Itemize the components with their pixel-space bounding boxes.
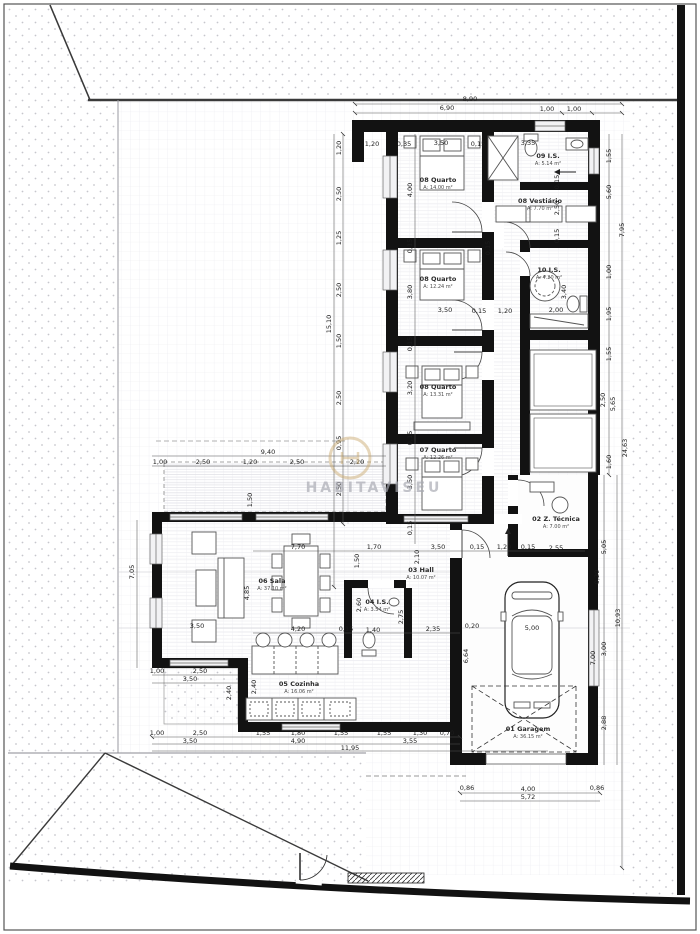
sink-is09 — [566, 138, 588, 150]
dimension-label: 2,35 — [426, 625, 440, 633]
room-label-hall: 03 HallA: 10.07 m² — [406, 566, 435, 581]
dimension-label: 1,40 — [366, 626, 380, 634]
dimension-label: 1,00 — [605, 265, 613, 279]
dimension-label: 2,50 — [599, 393, 607, 407]
dimension-label: 1,00 — [150, 729, 164, 737]
dimension-label: 3,50 — [431, 543, 445, 551]
dimension-label: 0,86 — [460, 784, 474, 792]
dimension-label: 1,00 — [567, 105, 581, 113]
room-label-is10: 10 I.S.A: 4.20 m² — [536, 266, 562, 281]
dimension-label: 1,50 — [353, 554, 361, 568]
room-label-cozinha: 05 CozinhaA: 16.06 m² — [279, 680, 319, 695]
sliding-gate — [348, 873, 424, 883]
wall-top-left-stub — [352, 120, 364, 162]
dimension-label: 9,40 — [261, 448, 275, 456]
dimension-label: 0,20 — [465, 622, 479, 630]
dimension-label: 5,00 — [525, 624, 539, 632]
is09-area: A: 5.14 m² — [535, 161, 561, 167]
dimension-label: 3,50 — [438, 306, 452, 314]
room-label-is04: 04 I.S.A: 3.54 m² — [364, 598, 390, 613]
wall-is04-east — [404, 588, 412, 658]
room-label-quarto08a: 08 QuartoA: 13.31 m² — [420, 383, 457, 398]
dimension-label: 2,00 — [549, 306, 563, 314]
ztecnica-name: 02 Z. Técnica — [532, 515, 580, 523]
dimension-label: 0,15 — [553, 229, 561, 243]
dimension-label: 1,50 — [335, 334, 343, 348]
dimension-label: 2,88 — [600, 716, 608, 730]
is04-area: A: 3.54 m² — [364, 607, 390, 613]
dimension-label: 4,90 — [291, 737, 305, 745]
dimension-label: 0,15 — [553, 175, 561, 189]
dimension-label: 0,15 — [472, 307, 486, 315]
dimension-label: 2,50 — [335, 187, 343, 201]
quarto08a-name: 08 Quarto — [420, 383, 457, 391]
dimension-label: 1,95 — [605, 307, 613, 321]
dimension-label: 2,40 — [225, 686, 233, 700]
room-label-quarto08b: 08 QuartoA: 12.24 m² — [420, 275, 457, 290]
is10-area: A: 4.20 m² — [536, 275, 562, 281]
dimension-label: 2,50 — [193, 667, 207, 675]
dimension-label: 2,50 — [335, 283, 343, 297]
wall-below-is10 — [520, 330, 600, 340]
dimension-label: 2,40 — [250, 680, 258, 694]
dimension-label: 7,05 — [128, 565, 136, 579]
bathtub-is10 — [530, 314, 588, 328]
cozinha-area: A: 16.06 m² — [284, 689, 313, 695]
dimension-label: 0,15 — [521, 543, 535, 551]
dimension-label: 1,00 — [540, 105, 554, 113]
stipple-top-band — [6, 6, 678, 100]
dimension-label: 0,15 — [471, 140, 485, 148]
stipple-left-column — [6, 100, 118, 753]
garagem-area: A: 36.15 m² — [513, 734, 542, 740]
dimension-label: 0,35 — [397, 140, 411, 148]
toilet-is10 — [567, 296, 587, 312]
dimension-label: 1,25 — [335, 231, 343, 245]
quarto08b-name: 08 Quarto — [420, 275, 457, 283]
dimension-label: 6,64 — [462, 649, 470, 663]
dimension-label: 6,90 — [440, 104, 454, 112]
dimension-label: 5,60 — [605, 185, 613, 199]
dimension-label: 3,50 — [183, 675, 197, 683]
dimension-label: 3,00 — [600, 642, 608, 656]
is09-name: 09 I.S. — [536, 152, 559, 160]
wardrobe-2 — [530, 414, 596, 472]
dimension-label: 1,70 — [367, 543, 381, 551]
dimension-label: 10,93 — [614, 609, 622, 628]
car — [501, 582, 563, 718]
dimension-label: 1,60 — [605, 455, 613, 469]
dimension-label: 3,20 — [406, 381, 414, 395]
hall-area: A: 10.07 m² — [406, 575, 435, 581]
dimension-label: 15,10 — [325, 315, 333, 334]
lot-right-wall — [677, 5, 685, 895]
dimension-label: 0,15 — [406, 337, 414, 351]
dimension-label: 0,15 — [470, 543, 484, 551]
dimension-label: 2,50 — [193, 729, 207, 737]
dimension-label: 0,70 — [440, 729, 454, 737]
dimension-label: 1,55 — [605, 149, 613, 163]
quarto07-name: 07 Quarto — [420, 446, 457, 454]
dimension-label: 2,50 — [196, 458, 210, 466]
quarto08c-name: 08 Quarto — [420, 176, 457, 184]
dimension-label: 1,55 — [334, 729, 348, 737]
dimension-label: 5,05 — [600, 540, 608, 554]
wall-is04-west — [344, 580, 352, 658]
dimension-label: 2,75 — [397, 610, 405, 624]
dimension-label: 4,00 — [406, 183, 414, 197]
dimension-label: 0,20 — [593, 570, 601, 584]
dimension-label: 0,15 — [406, 239, 414, 253]
sink-is04 — [389, 598, 399, 606]
quarto08c-area: A: 14.00 m² — [423, 185, 452, 191]
dimension-label: 0,15 — [484, 241, 492, 255]
room-label-sala: 06 SalaA: 37.10 m² — [257, 577, 286, 592]
watermark-brand-text: HABITAVISEU — [306, 480, 443, 496]
dimension-label: 3,55 — [403, 737, 417, 745]
quarto07-area: A: 12.26 m² — [423, 455, 452, 461]
dimension-label: 1,55 — [377, 729, 391, 737]
wardrobe-1 — [530, 350, 596, 410]
shower-is09 — [488, 136, 518, 180]
dimension-label: 1,55 — [605, 347, 613, 361]
dimension-label: 11,95 — [341, 744, 360, 752]
dimension-label: 1,55 — [256, 729, 270, 737]
dimension-label: 7,95 — [618, 223, 626, 237]
dimension-label: 2,10 — [413, 550, 421, 564]
wall-garage-south-left — [452, 753, 486, 765]
vestiario-area: A: 7.70 m² — [527, 206, 553, 212]
wall-corridor-east — [520, 340, 530, 475]
kitchen-counter — [246, 698, 356, 720]
dimension-label: 24,63 — [621, 439, 629, 458]
dimension-label: 1,50 — [246, 493, 254, 507]
garage-door — [486, 754, 566, 764]
dimension-label: 3,50 — [183, 737, 197, 745]
dimension-label: 2,50 — [553, 201, 561, 215]
dimension-label: 3,50 — [434, 139, 448, 147]
dimension-label: 3,80 — [406, 285, 414, 299]
cozinha-name: 05 Cozinha — [279, 680, 319, 688]
dimension-label: 2,50 — [290, 458, 304, 466]
stipple-right-strip — [630, 100, 678, 900]
dimension-label: 4,20 — [291, 625, 305, 633]
dimension-label: 0,15 — [406, 431, 414, 445]
dimension-label: 3,35 — [521, 139, 535, 147]
dimension-label: 0,86 — [590, 784, 604, 792]
dimension-label: 5,72 — [521, 793, 535, 801]
dimension-label: 3,50 — [190, 622, 204, 630]
is04-name: 04 I.S. — [365, 598, 388, 606]
room-label-is09: 09 I.S.A: 5.14 m² — [535, 152, 561, 167]
dimension-label: 0,15 — [406, 521, 414, 535]
is10-name: 10 I.S. — [537, 266, 560, 274]
floor-plan-sheet: 01 GaragemA: 36.15 m² 02 Z. TécnicaA: 7.… — [0, 0, 700, 934]
dimension-label: 1,20 — [335, 141, 343, 155]
dimension-label: 4,85 — [243, 586, 251, 600]
wall-garage-south-right — [566, 753, 598, 765]
dimension-label: 4,00 — [521, 785, 535, 793]
dimension-label: 1,20 — [497, 543, 511, 551]
ztecnica-area: A: 7.00 m² — [543, 524, 569, 530]
room-label-quarto08c: 08 QuartoA: 14.00 m² — [420, 176, 457, 191]
dimension-label: 1,20 — [498, 307, 512, 315]
dimension-label: 1,80 — [291, 729, 305, 737]
dimension-label: 2,60 — [355, 598, 363, 612]
dimension-label: 3,40 — [560, 285, 568, 299]
wall-kitchen-west — [238, 658, 248, 732]
dimension-label: 8,90 — [463, 95, 477, 103]
garagem-name: 01 Garagem — [506, 725, 551, 733]
dimension-label: 1,00 — [153, 458, 167, 466]
sala-name: 06 Sala — [259, 577, 286, 585]
sala-area: A: 37.10 m² — [257, 586, 286, 592]
dimension-label: 1,20 — [365, 140, 379, 148]
dimension-label: 1,30 — [413, 729, 427, 737]
dimension-label: 2,55 — [549, 544, 563, 552]
room-label-quarto07: 07 QuartoA: 12.26 m² — [420, 446, 457, 461]
toilet-is04 — [362, 632, 376, 656]
quarto08b-area: A: 12.24 m² — [423, 284, 452, 290]
dimension-label: 7,00 — [589, 651, 597, 665]
dimension-label: 5,65 — [609, 397, 617, 411]
dimension-label: 7,70 — [291, 543, 305, 551]
dimension-label: 1,20 — [243, 458, 257, 466]
hall-name: 03 Hall — [408, 566, 434, 574]
dimension-label: 2,50 — [335, 391, 343, 405]
dimension-label: 0,15 — [339, 625, 353, 633]
quarto08a-area: A: 13.31 m² — [423, 392, 452, 398]
dimension-label: 1,00 — [150, 667, 164, 675]
stipple-bottom-left — [6, 753, 366, 883]
